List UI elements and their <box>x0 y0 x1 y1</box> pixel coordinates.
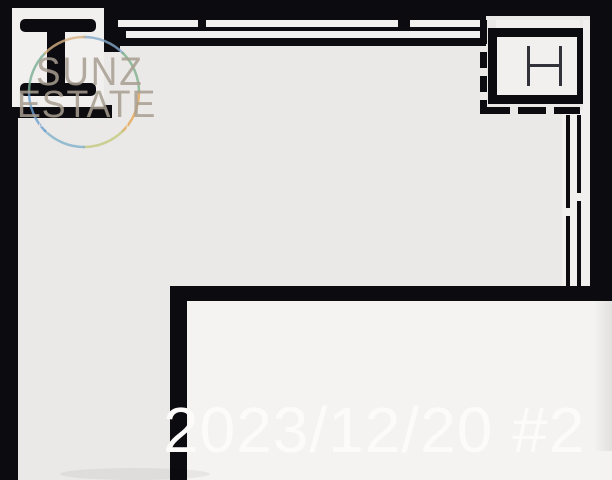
h-column-icon <box>527 64 562 67</box>
window-pane-segment <box>118 20 198 27</box>
h-column-box-border <box>488 28 586 37</box>
window-pane-segment <box>577 201 581 287</box>
window-pane-segment <box>126 31 480 38</box>
wall-slot <box>583 20 590 110</box>
brand-subtitle: サンズエステート <box>0 120 168 136</box>
dashed-boundary-vertical <box>480 52 487 68</box>
edge-shadow <box>60 468 210 480</box>
window-pane-segment <box>206 20 398 27</box>
dashed-boundary-vertical <box>480 76 487 92</box>
dashed-boundary-vertical <box>480 20 487 44</box>
window-pane-segment <box>566 216 570 287</box>
h-column-box-gap <box>496 20 580 28</box>
inner-room-wall-top <box>170 286 612 301</box>
window-pane-segment <box>577 115 581 193</box>
date-caption: 2023/12/20 #2 <box>163 398 585 462</box>
h-column-box-border <box>488 95 586 104</box>
floorplan-photo: SUNZ ESTATE サンズエステート 2023/12/20 #2 <box>0 0 612 480</box>
h-column-box-border <box>488 28 497 104</box>
dashed-boundary-horizontal <box>518 107 546 114</box>
edge-shadow <box>594 301 612 451</box>
window-pane-segment <box>410 20 480 27</box>
outer-wall-right <box>590 0 612 301</box>
window-pane-segment <box>566 115 570 208</box>
dashed-boundary-horizontal <box>554 107 580 114</box>
dashed-boundary-horizontal <box>486 107 510 114</box>
